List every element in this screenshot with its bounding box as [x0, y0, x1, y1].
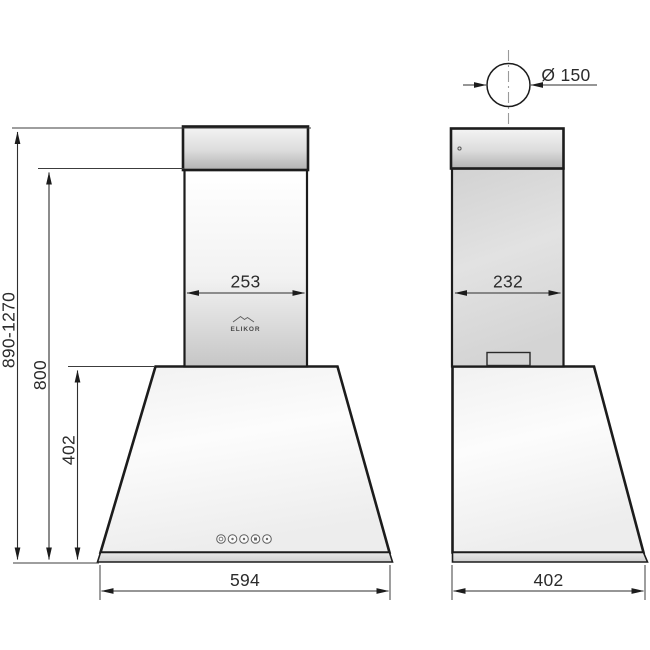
dimension-total-height: 890-1270	[0, 132, 19, 560]
front-hood-bottom-panel	[98, 553, 393, 563]
side-hood-bottom-panel	[453, 553, 648, 563]
speed-3-icon	[254, 538, 257, 541]
front-view: ELIKOR 253 594	[98, 127, 393, 601]
dimension-label-402-depth: 402	[533, 570, 563, 590]
brand-name: ELIKOR	[231, 326, 261, 333]
dimension-body-width: 594	[100, 565, 390, 600]
dimension-body-height: 402	[59, 371, 79, 560]
range-hood-drawing: ELIKOR 253 594	[0, 0, 650, 650]
dimension-label-diameter: Ø 150	[541, 65, 590, 85]
dimension-body-depth: 402	[452, 565, 645, 600]
front-chimney-lower-section	[185, 170, 308, 367]
dimension-label-594: 594	[230, 570, 260, 590]
light-icon	[266, 538, 268, 540]
speed-1-icon	[231, 538, 233, 540]
side-hood-body	[453, 367, 644, 553]
dimension-height-to-chimney-top: 800	[30, 173, 50, 560]
dimension-label-253: 253	[230, 272, 260, 292]
technical-drawing-canvas: ELIKOR 253 594	[0, 0, 650, 650]
side-chimney-lower-section	[452, 169, 564, 367]
side-view: Ø 150 232 402	[451, 50, 648, 600]
dimension-label-402-height: 402	[59, 435, 79, 465]
front-hood-body	[101, 367, 390, 553]
dimension-label-800: 800	[30, 360, 50, 390]
dimension-label-232: 232	[493, 272, 523, 292]
dimension-label-890-1270: 890-1270	[0, 292, 19, 368]
side-chimney-upper-section	[451, 129, 564, 169]
control-button-icon-1	[217, 535, 226, 544]
speed-2-icon	[243, 538, 245, 540]
front-chimney-upper-section	[183, 127, 308, 171]
